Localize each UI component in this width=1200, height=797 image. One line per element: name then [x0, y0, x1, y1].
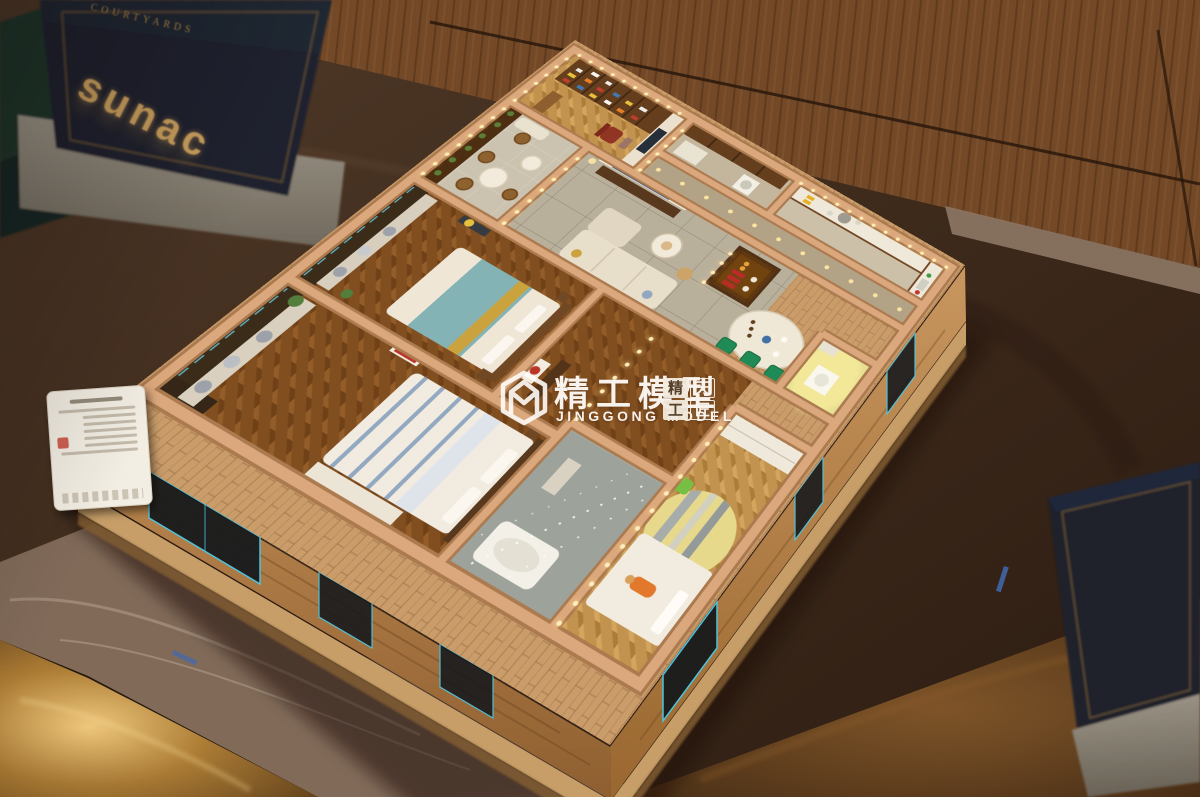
card-text-line	[84, 426, 137, 432]
card-text-line	[85, 440, 138, 446]
card-footer	[62, 488, 144, 504]
card-text-line	[83, 412, 136, 418]
card-text-line	[58, 405, 135, 413]
card-title-line	[70, 396, 123, 404]
card-text-line	[61, 447, 138, 455]
showroom-photo: COURTYARDS sunac 精工模型 JINGGONG MODEL 精 天…	[0, 0, 1200, 797]
card-text-line	[84, 433, 137, 439]
card-text-line	[83, 419, 136, 425]
display-board-left	[0, 0, 345, 248]
red-seal-stamp	[57, 437, 69, 449]
model-info-card	[46, 385, 153, 512]
